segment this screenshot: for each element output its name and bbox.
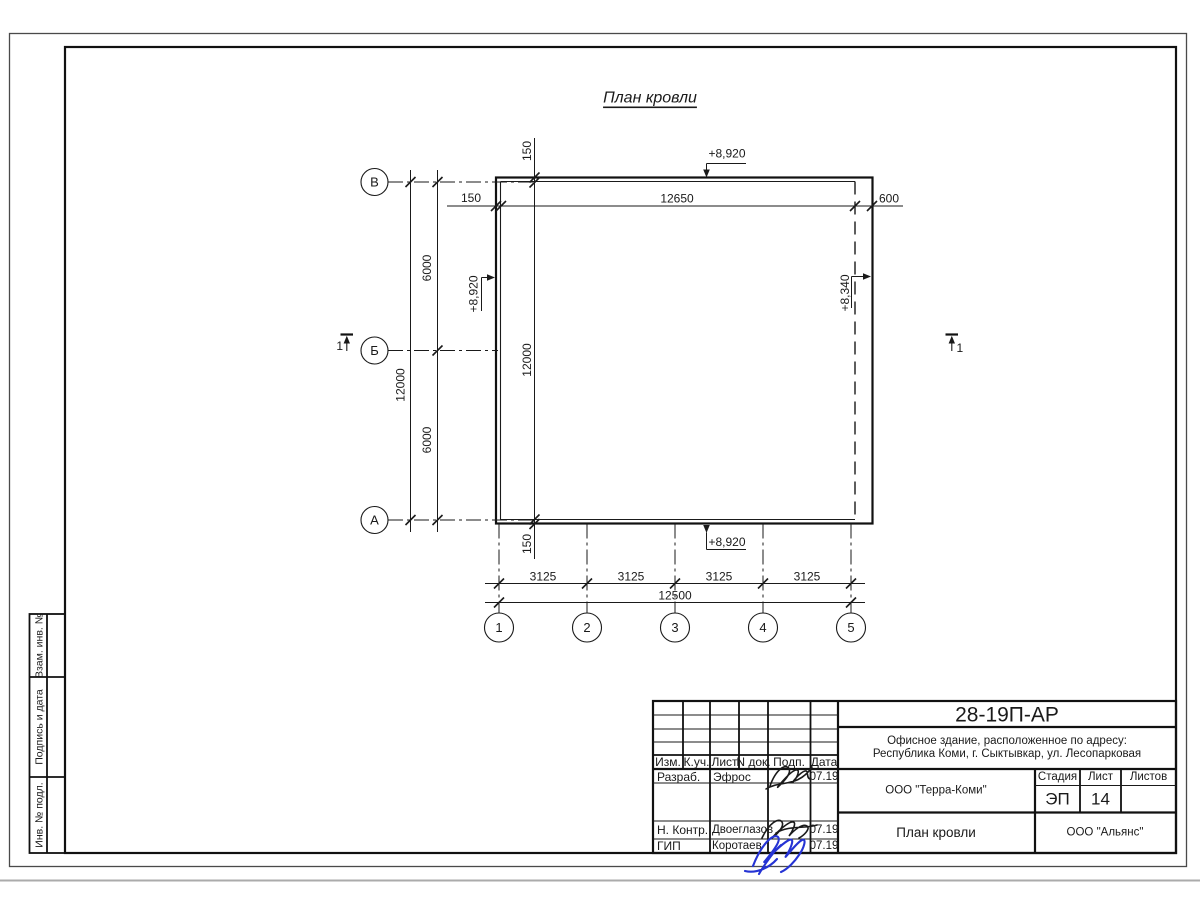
tb-sheets-label: Листов xyxy=(1130,771,1167,783)
tb-stage-label: Стадия xyxy=(1038,771,1077,783)
axis-lines xyxy=(388,182,851,613)
dim-bay-3: 3125 xyxy=(706,570,733,584)
elevation-bottom: +8,920 xyxy=(703,525,746,550)
dim-vertical-inner: 150 12000 150 xyxy=(520,138,540,559)
dim-overhang-left: 150 xyxy=(461,191,481,205)
axis-label-4: 4 xyxy=(759,620,766,635)
dim-top-total: 12650 xyxy=(660,192,694,206)
tb-date-gip: 07.19 xyxy=(810,840,839,852)
axis-label-5: 5 xyxy=(847,620,854,635)
tb-sheet-label: Лист xyxy=(1088,771,1114,783)
axis-label-b: Б xyxy=(370,343,379,358)
elevation-left: +8,920 xyxy=(467,274,496,312)
elevation-left-value: +8,920 xyxy=(467,275,481,312)
drawing-sheet: Взам. инв. № Подпись и дата Инв. № подл.… xyxy=(0,0,1200,900)
dim-inner-height: 12000 xyxy=(520,343,534,377)
tb-sheet-value: 14 xyxy=(1091,790,1110,809)
axis-label-3: 3 xyxy=(671,620,678,635)
tb-date-razrab: 07.19 xyxy=(810,771,839,783)
tb-name-efros: Эфрос xyxy=(713,770,751,784)
section-mark-right: 1 xyxy=(946,335,964,356)
axis-label-1: 1 xyxy=(495,620,502,635)
tb-contractor: ООО "Альянс" xyxy=(1067,827,1144,839)
tb-name-korotaev: Коротаев xyxy=(712,840,762,852)
sheet-canvas: Взам. инв. № Подпись и дата Инв. № подл.… xyxy=(0,0,1200,900)
section-label-left: 1 xyxy=(336,339,343,353)
axis-label-2: 2 xyxy=(583,620,590,635)
tb-company: ООО "Терра-Коми" xyxy=(885,785,986,797)
tb-doc-number: 28-19П-АР xyxy=(955,704,1059,727)
tb-object-line2: Республика Коми, г. Сыктывкар, ул. Лесоп… xyxy=(873,748,1141,760)
tb-stage-value: ЭП xyxy=(1045,790,1069,809)
elevation-top: +8,920 xyxy=(703,147,746,178)
tb-header-kuch: К.уч. xyxy=(684,755,710,769)
dim-row-top: 150 12650 600 xyxy=(447,191,903,211)
tb-header-data: Дата xyxy=(811,755,838,769)
dim-span-ba: 6000 xyxy=(420,426,434,453)
dim-left-12000: 12000 xyxy=(394,368,408,402)
tb-role-razrab: Разраб. xyxy=(657,770,700,784)
dim-bay-4: 3125 xyxy=(794,570,821,584)
tb-object-line1: Офисное здание, расположенное по адресу: xyxy=(887,735,1127,747)
roof-outline xyxy=(496,178,873,524)
dim-bay-1: 3125 xyxy=(530,570,557,584)
strip-label-inv: Инв. № подл. xyxy=(34,782,46,847)
dim-overhang-top: 150 xyxy=(520,141,534,161)
tb-header-ndok: N док. xyxy=(736,755,770,769)
elevation-right-value: +8,340 xyxy=(838,274,852,311)
axis-bubbles-left: В Б А xyxy=(361,169,388,534)
dim-overhang-right: 600 xyxy=(879,192,899,206)
dim-bay-2: 3125 xyxy=(618,570,645,584)
left-margin-strip: Взам. инв. № Подпись и дата Инв. № подл. xyxy=(30,613,66,853)
dim-bottom-total: 12500 xyxy=(658,589,692,603)
axis-label-a: А xyxy=(370,513,379,528)
strip-label-podpis: Подпись и дата xyxy=(34,689,46,765)
tb-sheet-title: План кровли xyxy=(896,825,976,840)
tb-header-izm: Изм. xyxy=(655,755,681,769)
elevation-top-value: +8,920 xyxy=(708,147,745,161)
strip-label-vzam: Взам. инв. № xyxy=(34,613,46,678)
tb-header-list: Лист xyxy=(711,755,738,769)
section-label-right: 1 xyxy=(957,341,964,355)
tb-role-gip: ГИП xyxy=(657,839,681,853)
dim-span-vb: 6000 xyxy=(420,254,434,281)
axis-bubbles-bottom: 1 2 3 4 5 xyxy=(485,613,866,642)
tb-role-nkontr: Н. Контр. xyxy=(657,823,708,837)
section-mark-left: 1 xyxy=(336,335,353,354)
drawing-title: План кровли xyxy=(603,90,697,107)
title-block: Изм. К.уч. Лист N док. Подп. Дата Разраб… xyxy=(653,701,1176,853)
elevation-bottom-value: +8,920 xyxy=(708,535,745,549)
axis-label-v: В xyxy=(370,175,379,190)
dim-overhang-bottom: 150 xyxy=(520,534,534,554)
tb-header-podp: Подп. xyxy=(773,755,805,769)
